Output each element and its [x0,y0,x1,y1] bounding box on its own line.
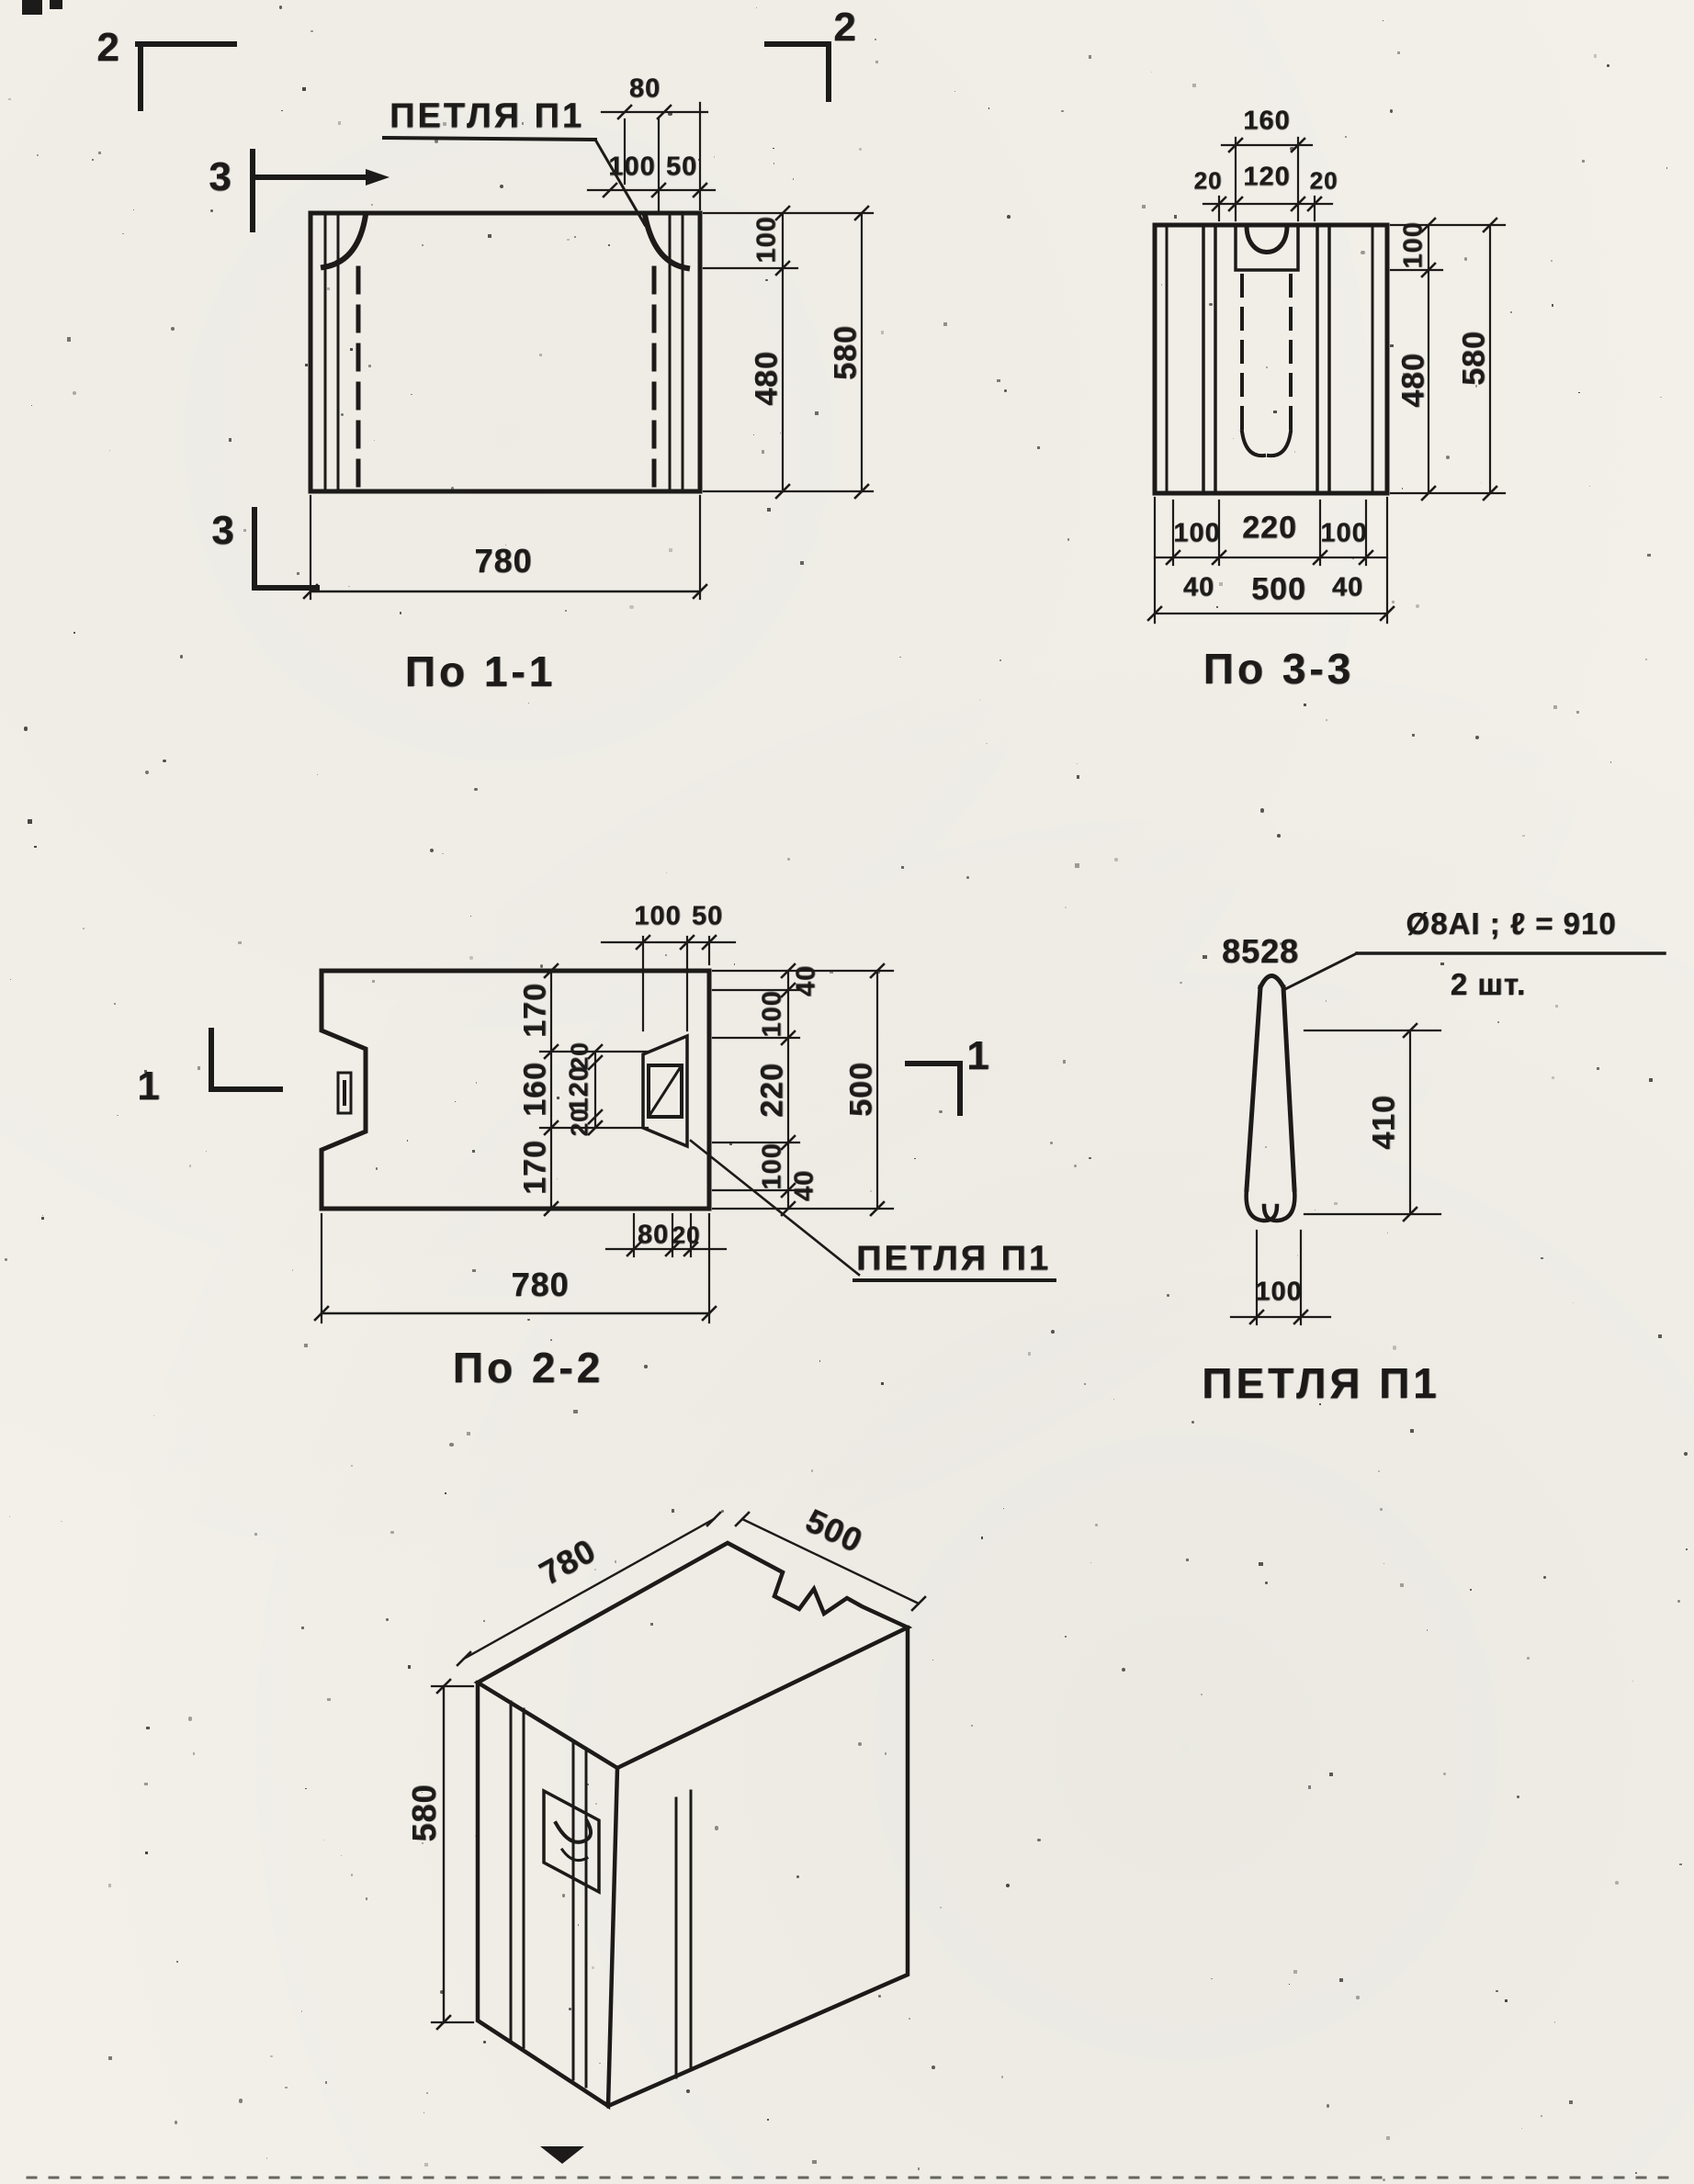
view-1-1-title: По 1-1 [405,647,556,696]
dim-22-right-220: 220 [755,1063,791,1118]
dim-loop-height-410: 410 [1367,1095,1403,1150]
dim-right-580: 580 [829,325,864,380]
dim-22-right-40b: 40 [790,1170,820,1201]
loop-spec-label: 8528 [1222,932,1299,971]
loop-callout-label: ПЕТЛЯ П1 [390,97,584,137]
dim-hook-width: 80 [629,74,661,105]
dim-33-top-total: 160 [1243,107,1290,137]
dim-22-right-500: 500 [844,1062,880,1117]
dim-22-right-100b: 100 [758,1143,788,1189]
dim-right-100: 100 [752,216,783,263]
dim-33-right-480: 480 [1396,353,1432,408]
dim-22-left-160: 160 [518,1062,554,1117]
dim-top-a: 100 [608,152,655,183]
dim-33-bot-100b: 100 [1320,519,1367,549]
dim-top-b: 50 [666,152,697,183]
section-marker-1-right: 1 [966,1033,989,1079]
dim-33-top-c: 20 [1310,167,1338,196]
dim-22-left-170a: 170 [518,983,554,1038]
section-marker-1-left: 1 [137,1064,160,1109]
dim-33-right-100: 100 [1399,221,1429,268]
dim-22-right-40t: 40 [792,965,822,996]
loop-detail-title: ПЕТЛЯ П1 [1202,1358,1440,1408]
dim-33-bot-40r: 40 [1332,573,1363,603]
section-marker-2-right: 2 [833,5,856,51]
section-marker-3-top: 3 [209,154,232,200]
view-3-3-linework [1148,138,1505,623]
dim-bottom-780: 780 [474,542,532,580]
dim-22-mid-20b: 20 [566,1109,594,1137]
scanned-drawing-sheet: ПЕТЛЯ П1 80 100 50 100 480 580 780 По 1-… [0,0,1694,2184]
dim-33-bot-220: 220 [1242,511,1297,546]
dim-22-mid-120: 120 [565,1065,595,1112]
dim-loop-width-100: 100 [1255,1278,1302,1308]
loop-note-qty: 2 шт. [1451,967,1526,1002]
dim-22-bot-20: 20 [672,1221,701,1250]
dim-22-right-100a: 100 [758,990,788,1037]
dim-iso-580: 580 [405,1784,444,1841]
dim-right-480: 480 [750,351,785,406]
dim-33-bot-500: 500 [1251,572,1306,608]
isometric-linework [432,1513,925,2164]
dim-22-bot-80: 80 [638,1221,669,1251]
section-marker-2-left: 2 [96,25,119,71]
loop-detail-linework [1231,953,1665,1324]
dim-22-left-170b: 170 [518,1140,554,1195]
view-3-3-title: По 3-3 [1203,644,1354,693]
dim-22-bottom-780: 780 [511,1266,569,1304]
dim-33-bot-100a: 100 [1173,519,1220,549]
dim-33-top-a: 20 [1194,167,1223,196]
view-2-2-title: По 2-2 [453,1343,604,1392]
section-marker-3-bottom: 3 [211,508,234,554]
dim-22-top-100: 100 [634,902,681,932]
loop-callout-label-22: ПЕТЛЯ П1 [856,1240,1051,1279]
dim-22-top-50: 50 [692,902,723,932]
dim-33-bot-40l: 40 [1183,573,1214,603]
dim-33-right-580: 580 [1457,331,1493,386]
dim-33-top-b: 120 [1243,163,1290,193]
loop-note-spec: Ø8АI ; ℓ = 910 [1406,906,1616,941]
